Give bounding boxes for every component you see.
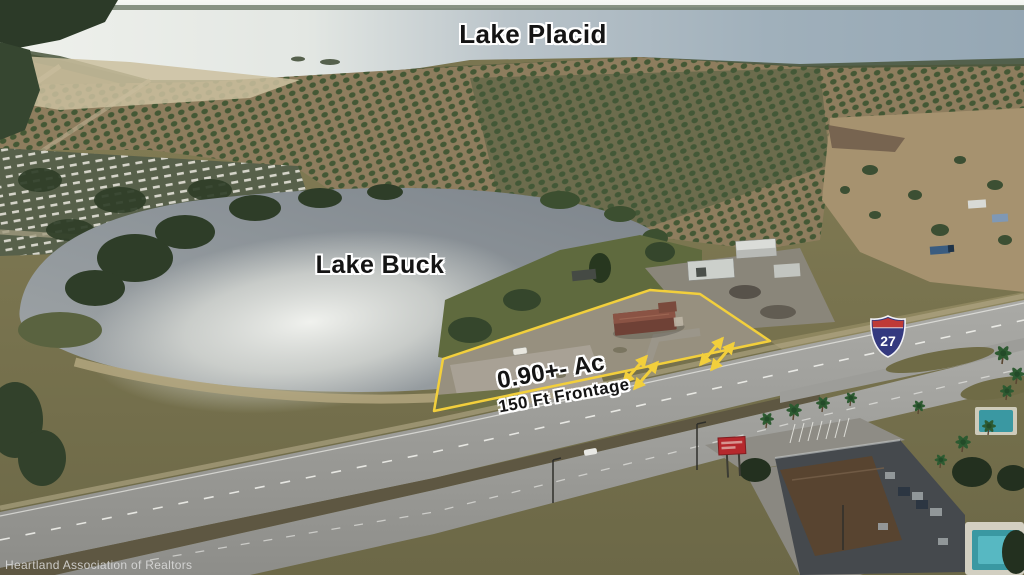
watermark: Heartland Association of Realtors <box>5 558 192 572</box>
lake-placid-label: Lake Placid <box>459 21 606 48</box>
route-number: 27 <box>880 333 896 349</box>
aerial-listing-photo: 27 Lake Placid Lake Buck 0.90+- Ac 150 F… <box>0 0 1024 575</box>
lake-buck-label: Lake Buck <box>316 252 445 278</box>
aerial-scene: 27 <box>0 0 1024 575</box>
small-pool <box>975 407 1017 435</box>
